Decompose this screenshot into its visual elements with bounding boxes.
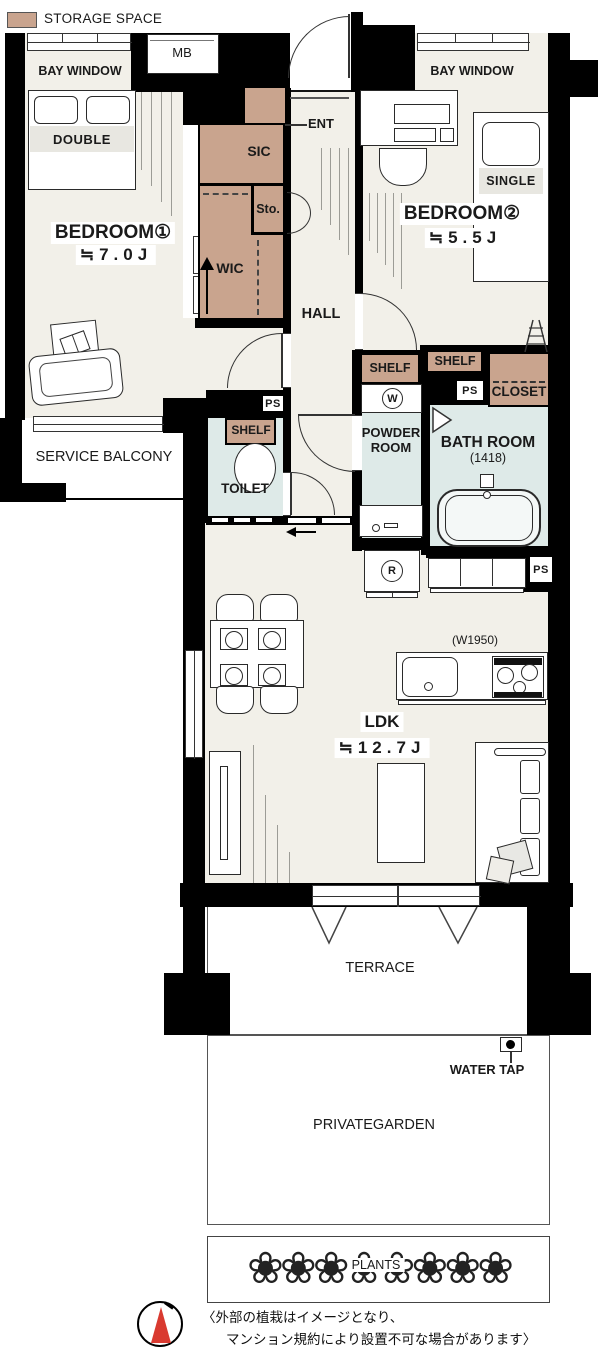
room-label-terrace: TERRACE — [345, 960, 414, 977]
storage-wic-block — [198, 123, 285, 320]
wall-segment — [283, 412, 291, 472]
plan-geometry: W — [387, 393, 397, 405]
label-shelf-powder: SHELF — [370, 361, 411, 375]
bay-window-glazing — [27, 33, 131, 51]
plan-geometry — [492, 559, 493, 586]
wall-segment — [362, 25, 415, 92]
plan-geometry: R — [388, 565, 396, 577]
plan-geometry — [251, 232, 285, 235]
label-powder-1: POWDER — [362, 426, 421, 441]
vanity-faucet — [372, 524, 380, 532]
dining-chair — [216, 594, 254, 622]
dining-chair — [260, 686, 298, 714]
room-label-ldk: LDK — [361, 712, 404, 732]
sliding-door — [288, 518, 316, 523]
plan-geometry — [225, 631, 243, 649]
plan-geometry — [348, 148, 349, 255]
water-tap-icon — [500, 1037, 522, 1052]
wall-segment — [5, 33, 25, 420]
plan-geometry — [263, 667, 281, 685]
compass-needle — [151, 1307, 171, 1343]
size-label-bath: (1418) — [470, 451, 506, 465]
plan-geometry: DOUBLE — [53, 132, 111, 147]
sofa-cushion — [520, 798, 540, 834]
plan-geometry — [397, 886, 399, 907]
wall-segment — [183, 92, 243, 125]
label-shelf-toilet: SHELF — [231, 424, 270, 438]
plan-geometry — [385, 193, 386, 265]
washer-symbol: W — [382, 388, 403, 409]
plan-geometry — [97, 34, 98, 43]
keyboard — [394, 128, 436, 142]
sink-drain — [424, 682, 433, 691]
plan-geometry — [418, 42, 530, 43]
label-closet: CLOSET — [492, 384, 547, 400]
label-mb: MB — [172, 46, 192, 61]
area-label-bedroom1: ≒7.0J — [76, 245, 156, 265]
sofa-pillow — [486, 856, 514, 884]
plan-geometry — [161, 92, 162, 202]
plan-geometry — [312, 907, 346, 943]
room-label-toilet: TOILET — [221, 481, 269, 497]
vanity-tap — [384, 523, 398, 528]
wall-segment — [356, 538, 425, 550]
bath-step — [480, 474, 494, 488]
label-bay-window-1: BAY WINDOW — [38, 64, 121, 78]
plan-geometry — [439, 907, 477, 943]
area-label-bedroom2: ≒5.5J — [425, 228, 505, 248]
plan-geometry — [265, 795, 266, 883]
terrace-window — [312, 885, 480, 906]
window-opening-marks — [300, 906, 500, 946]
ps-box: PS — [456, 380, 484, 401]
sliding-door — [256, 518, 272, 522]
sliding-door — [322, 518, 350, 523]
plan-geometry — [330, 148, 331, 225]
wic-arrow-icon — [206, 268, 208, 314]
window — [185, 650, 203, 758]
door-leaf — [298, 414, 355, 416]
plan-geometry — [377, 193, 378, 253]
wall-segment — [548, 90, 570, 357]
ladder-icon — [520, 318, 550, 354]
kitchen-counter-lip — [398, 700, 546, 705]
plan-geometry — [150, 40, 214, 41]
wall-segment — [548, 33, 570, 63]
wall-segment — [164, 973, 230, 1035]
plan-geometry — [194, 651, 195, 759]
plan-geometry: PS — [533, 564, 549, 576]
label-sto: Sto. — [256, 202, 280, 216]
plan-geometry — [141, 92, 142, 170]
plan-geometry — [492, 34, 493, 43]
label-hall: HALL — [302, 306, 341, 323]
burner — [521, 664, 538, 681]
sliding-door — [234, 518, 250, 522]
door-leaf — [348, 14, 350, 78]
bathtub-drain — [483, 491, 491, 499]
plan-geometry — [494, 658, 542, 665]
plan-geometry — [321, 148, 322, 210]
hanger-pipe — [493, 381, 545, 383]
sliding-door — [212, 518, 228, 522]
label-water-tap: WATER TAP — [450, 1063, 525, 1078]
hanger-pipe — [257, 240, 259, 315]
room-label-bedroom1: BEDROOM① — [51, 222, 175, 244]
room-label-bath: BATH ROOM — [441, 434, 535, 452]
plan-geometry: PS — [462, 385, 478, 397]
plan-geometry — [289, 852, 290, 883]
label-kitchen-width: (W1950) — [452, 634, 498, 648]
wall-segment — [183, 907, 205, 973]
room-label-bedroom2: BEDROOM② — [400, 203, 524, 225]
plan-geometry — [277, 825, 278, 883]
slide-arrow-icon — [294, 531, 316, 533]
plan-geometry — [339, 148, 340, 240]
plan-geometry — [460, 559, 461, 586]
vanity — [359, 505, 423, 537]
plan-geometry — [34, 424, 164, 425]
counter-lip — [430, 588, 524, 593]
refrigerator-symbol: R — [381, 560, 403, 582]
kitchen-sink — [402, 657, 458, 697]
bay-window-glazing — [417, 33, 529, 51]
sofa-cushion — [520, 760, 540, 794]
bath-door-icon — [431, 406, 453, 434]
plan-geometry — [198, 183, 285, 186]
plan-geometry — [253, 745, 254, 883]
wall-segment — [548, 600, 570, 887]
pillow — [482, 122, 540, 166]
label-powder-2: ROOM — [371, 441, 411, 456]
plan-geometry — [62, 34, 63, 43]
wall-segment — [527, 907, 570, 973]
step-line — [290, 97, 349, 99]
burner — [497, 667, 514, 684]
place-setting — [258, 664, 286, 686]
single-bed-label-band: SINGLE — [479, 168, 543, 194]
label-plants: PLANTS — [348, 1258, 405, 1272]
wall-segment — [527, 973, 591, 1035]
pillow — [86, 96, 130, 124]
plan-geometry — [392, 593, 393, 598]
label-bay-window-2: BAY WINDOW — [430, 64, 513, 78]
place-setting — [220, 664, 248, 686]
tv — [220, 766, 228, 860]
legend-storage-swatch — [7, 12, 37, 28]
plan-geometry — [393, 193, 394, 277]
dining-chair — [260, 594, 298, 622]
dining-chair — [216, 686, 254, 714]
plan-geometry: PS — [265, 398, 281, 410]
plan-geometry — [225, 667, 243, 685]
bathtub-inner — [445, 495, 533, 541]
door-opening — [283, 333, 291, 388]
wall-segment — [183, 398, 208, 523]
plan-geometry — [151, 92, 152, 186]
counter — [428, 558, 526, 588]
plan-geometry: SINGLE — [486, 174, 536, 188]
label-shelf-hall: SHELF — [435, 354, 476, 368]
plan-geometry — [251, 186, 254, 235]
double-bed-label-band: DOUBLE — [30, 126, 134, 152]
label-ent: ENT — [308, 117, 334, 132]
plan-geometry — [263, 631, 281, 649]
ent-leader — [285, 124, 307, 126]
wall-segment — [0, 483, 66, 502]
door-leaf — [290, 472, 292, 515]
plan-geometry — [455, 34, 456, 43]
label-sic: SIC — [247, 143, 270, 159]
window — [33, 416, 163, 432]
wic-arrow-head — [200, 257, 214, 270]
mouse — [440, 128, 454, 142]
room-label-private-garden: PRIVATEGARDEN — [313, 1117, 435, 1134]
area-label-ldk: ≒12.7J — [335, 738, 430, 758]
pillow — [34, 96, 78, 124]
plan-geometry — [433, 408, 451, 432]
note-line2: マンション規約により設置不可な場合があります〉 — [226, 1328, 536, 1348]
plan-geometry — [171, 92, 172, 216]
room-label-service-balcony: SERVICE BALCONY — [36, 449, 173, 466]
sofa-armrest — [494, 748, 546, 756]
plan-geometry — [506, 1040, 515, 1049]
floor-plan: PS PS PS DOUBLE SINGLE — [0, 0, 600, 1361]
plan-geometry — [28, 42, 132, 43]
legend-storage-label: STORAGE SPACE — [44, 11, 162, 26]
place-setting — [220, 628, 248, 650]
plan-geometry — [369, 193, 370, 241]
ps-box: PS — [262, 395, 284, 412]
label-wic: WIC — [216, 260, 243, 276]
place-setting — [258, 628, 286, 650]
monitor — [394, 104, 450, 124]
slide-arrow-head — [286, 527, 296, 537]
center-table — [377, 763, 425, 863]
door-leaf — [281, 333, 283, 388]
hanger-pipe — [203, 193, 248, 195]
note-line1: 〈外部の植栽はイメージとなり、 — [202, 1306, 403, 1326]
refrigerator-lip — [366, 592, 418, 598]
plan-geometry — [494, 692, 542, 697]
ps-box: PS — [529, 556, 553, 583]
